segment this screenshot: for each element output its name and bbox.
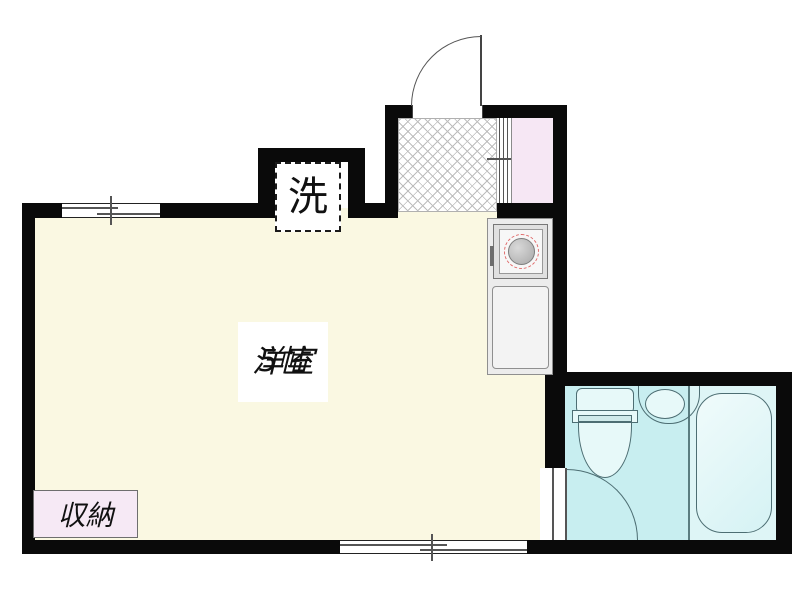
- kitchen-sink: [492, 286, 549, 369]
- wall-bath-left: [545, 372, 565, 468]
- main-room-label: 洋室 5帖: [238, 322, 328, 402]
- room-size: 5帖: [258, 346, 307, 378]
- window-bottom: [340, 540, 527, 554]
- wall-bath-right: [776, 372, 792, 554]
- floor-plan: 洗 洋室 5帖 収納: [0, 0, 800, 596]
- wall-bottom-a: [22, 540, 340, 554]
- bathroom-door-frame-line: [552, 468, 554, 540]
- stove-burner: [508, 238, 535, 265]
- wall-top-b: [160, 203, 258, 218]
- window-top-tick: [110, 196, 112, 225]
- wall-right-column: [553, 105, 567, 386]
- entrance-genkan: [398, 118, 497, 212]
- laundry-label: 洗: [288, 177, 328, 217]
- closet-box: 収納: [33, 490, 138, 538]
- wall-bath-bottom: [553, 540, 792, 554]
- washbasin: [645, 389, 685, 419]
- entrance-door-swing-arc: [411, 36, 481, 106]
- wall-bottom-b: [527, 540, 567, 554]
- window-bottom-pane-line: [420, 549, 527, 551]
- entrance-doorway: [412, 105, 483, 118]
- wall-entrance-left: [385, 105, 398, 218]
- sliding-door-line: [503, 118, 504, 203]
- laundry-space-box: 洗: [275, 162, 341, 232]
- stove-handle: [490, 246, 494, 266]
- kitchen-corridor-floor: [511, 118, 555, 203]
- window-top-pane-line: [97, 213, 160, 215]
- wall-bath-top: [545, 372, 790, 386]
- wall-top-a: [22, 203, 62, 218]
- sliding-door-line: [499, 118, 500, 203]
- sliding-door-line: [507, 118, 508, 203]
- window-bottom-tick: [431, 534, 433, 561]
- wall-under-kitchen-corridor: [497, 203, 567, 218]
- closet-label: 収納: [57, 494, 113, 534]
- bathtub: [696, 393, 772, 533]
- wall-entrance-top-left: [385, 105, 412, 118]
- bathroom-doorway: [540, 468, 567, 540]
- toilet-seat-band: [578, 415, 632, 422]
- wall-alcove-right: [348, 148, 365, 218]
